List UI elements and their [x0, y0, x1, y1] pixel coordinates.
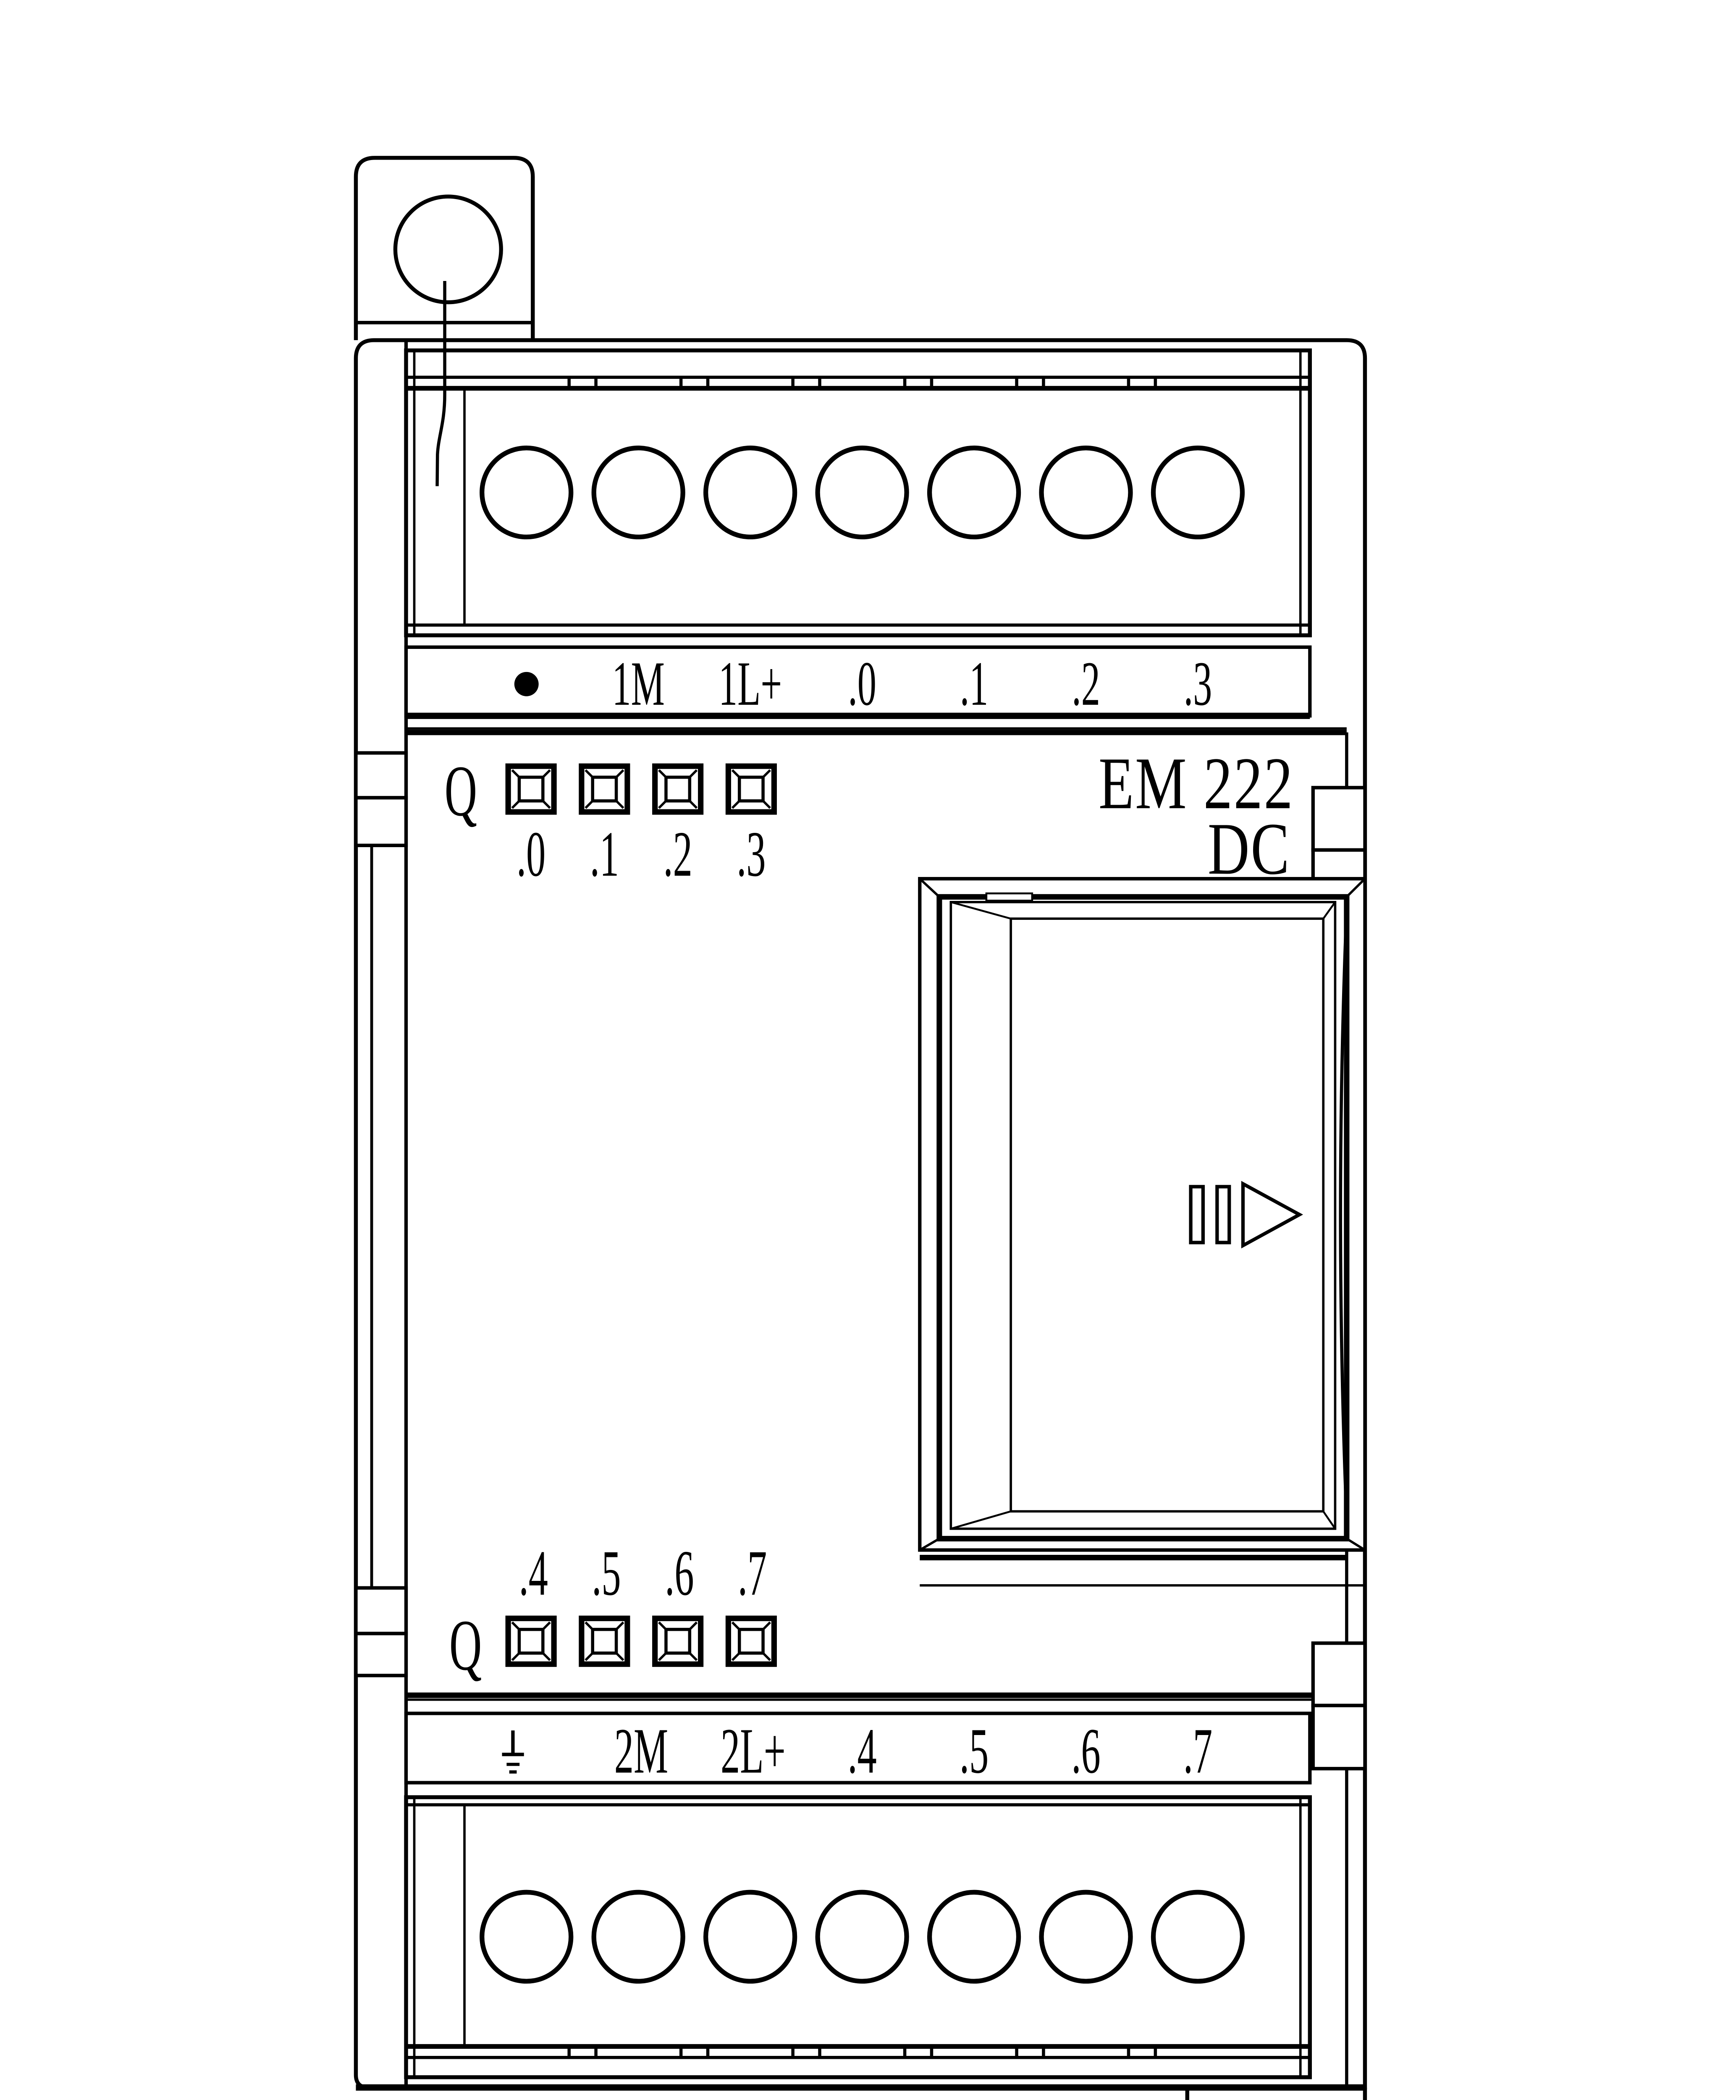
output-letter-top: Q	[445, 751, 477, 831]
led-label-q3: .3	[737, 819, 766, 890]
bus-step-right-bottom-1	[1313, 1643, 1365, 1705]
terminal-screw-bottom-4	[818, 1892, 907, 1981]
terminal-label-q0: .0	[848, 649, 876, 719]
terminal-block-bottom	[406, 1797, 1310, 2077]
plc-module-diagram: 1M 1L+ .0 .1 .2 .3 Q .0 .1 .2 .3 EM 222 …	[0, 0, 1736, 2100]
led-label-q5: .5	[592, 1538, 621, 1609]
terminal-label-q6: .6	[1071, 1716, 1100, 1787]
terminal-label-q5: .5	[960, 1716, 989, 1787]
terminal-label-q2: .2	[1072, 649, 1100, 719]
terminal-label-q4: .4	[847, 1716, 876, 1787]
status-led-q3	[728, 766, 774, 812]
terminal-label-1m: 1M	[612, 649, 665, 719]
mounting-hole-top	[395, 197, 501, 302]
status-led-q0	[508, 766, 554, 812]
label-strip-top: 1M 1L+ .0 .1 .2 .3	[406, 647, 1310, 719]
led-label-q2: .2	[663, 819, 692, 890]
terminal-block-top	[406, 350, 1310, 635]
terminal-screw-top-7	[1153, 448, 1242, 537]
din-clip-left-top-2	[356, 798, 406, 845]
status-led-q5	[582, 1618, 627, 1664]
terminal-label-2l: 2L+	[721, 1716, 786, 1787]
output-letter-bottom: Q	[449, 1605, 482, 1685]
terminal-screw-bottom-1	[482, 1892, 571, 1981]
status-led-q4	[508, 1618, 554, 1664]
terminal-screw-bottom-5	[930, 1892, 1019, 1981]
power-dot-icon	[514, 672, 539, 696]
terminal-screw-bottom-7	[1153, 1892, 1242, 1981]
din-clip-left-top-1	[356, 753, 406, 798]
bus-step-right-top-1	[1313, 787, 1365, 850]
terminal-screw-top-4	[818, 448, 907, 537]
bus-connector-bar-2	[1217, 1186, 1229, 1242]
status-led-q2	[655, 766, 701, 812]
terminal-label-1l: 1L+	[719, 649, 782, 719]
terminal-screw-bottom-3	[706, 1892, 795, 1981]
terminal-screw-top-5	[930, 448, 1019, 537]
terminal-label-q1: .1	[960, 649, 989, 719]
terminal-label-q7: .7	[1183, 1716, 1212, 1787]
terminal-screw-bottom-2	[594, 1892, 683, 1981]
status-led-q1	[582, 766, 627, 812]
terminal-screw-top-6	[1041, 448, 1130, 537]
terminal-screw-bottom-6	[1041, 1892, 1130, 1981]
led-label-q7: .7	[738, 1538, 767, 1609]
door-latch	[986, 893, 1032, 900]
led-label-q6: .6	[665, 1538, 694, 1609]
terminal-screw-top-2	[594, 448, 683, 537]
din-clip-left-bottom-1	[356, 1588, 406, 1634]
terminal-screw-top-3	[706, 448, 795, 537]
terminal-label-2m: 2M	[614, 1716, 668, 1787]
diagram-svg: 1M 1L+ .0 .1 .2 .3 Q .0 .1 .2 .3 EM 222 …	[0, 0, 1736, 2100]
led-label-q1: .1	[590, 819, 619, 890]
status-led-q7	[728, 1618, 774, 1664]
terminal-label-q3: .3	[1184, 649, 1212, 719]
label-strip-bottom: 2M 2L+ .4 .5 .6 .7	[406, 1714, 1310, 1787]
expansion-port-door	[920, 879, 1365, 1550]
bus-step-right-bottom-2	[1313, 1706, 1365, 1769]
terminal-screw-top-1	[482, 448, 571, 537]
din-clip-left-bottom-2	[356, 1633, 406, 1675]
bus-connector-bar-1	[1191, 1186, 1203, 1242]
led-label-q0: .0	[517, 819, 545, 890]
status-led-q6	[655, 1618, 701, 1664]
led-label-q4: .4	[519, 1538, 548, 1609]
